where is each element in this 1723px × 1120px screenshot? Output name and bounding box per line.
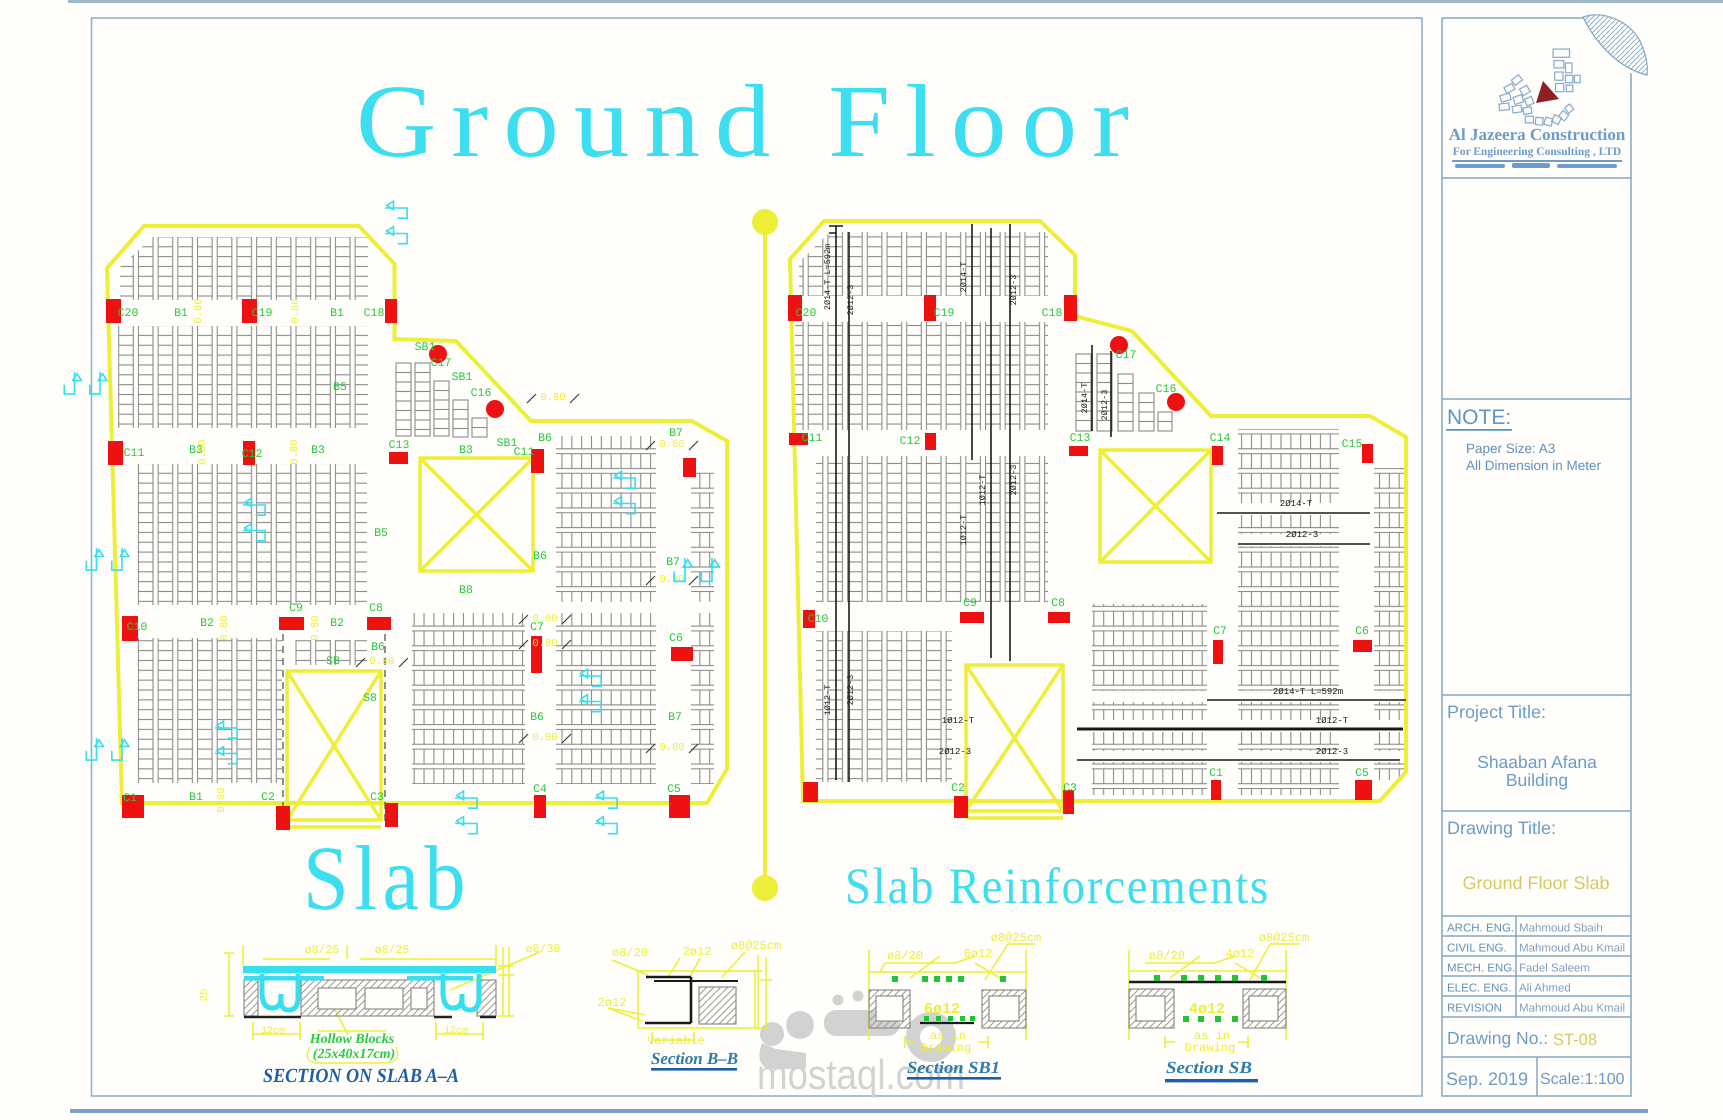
svg-text:C4: C4 <box>533 783 547 796</box>
svg-text:4ø12: 4ø12 <box>1226 947 1255 961</box>
svg-text:Project Title:: Project Title: <box>1447 702 1546 722</box>
svg-text:Drawing Title:: Drawing Title: <box>1447 818 1556 838</box>
svg-text:2Ø12-3: 2Ø12-3 <box>1009 465 1019 496</box>
svg-text:Paper Size: A3: Paper Size: A3 <box>1466 441 1555 456</box>
svg-text:2ø12: 2ø12 <box>683 945 712 959</box>
svg-text:C7: C7 <box>1213 625 1227 638</box>
svg-text:2Ø12-3: 2Ø12-3 <box>1100 390 1110 421</box>
svg-text:2Ø14-T: 2Ø14-T <box>959 262 969 293</box>
svg-text:2Ø12-3: 2Ø12-3 <box>846 675 856 706</box>
svg-text:Hollow Blocks: Hollow Blocks <box>309 1032 395 1047</box>
svg-text:4ø12: 4ø12 <box>1189 1001 1225 1018</box>
svg-text:C11: C11 <box>802 432 823 445</box>
svg-text:1Ø12-T: 1Ø12-T <box>1316 716 1349 726</box>
svg-text:C1: C1 <box>123 792 137 805</box>
svg-text:C9: C9 <box>963 597 977 610</box>
svg-text:Building: Building <box>1506 770 1568 790</box>
svg-text:C12: C12 <box>242 448 263 461</box>
svg-text:2Ø12-3: 2Ø12-3 <box>1286 530 1318 540</box>
svg-text:6ø12: 6ø12 <box>964 947 993 961</box>
svg-text:0.80: 0.80 <box>532 613 557 625</box>
svg-text:C15: C15 <box>1342 438 1363 451</box>
svg-text:C18: C18 <box>364 307 385 320</box>
svg-text:S8: S8 <box>363 692 377 705</box>
svg-text:ø8/20: ø8/20 <box>887 949 923 963</box>
svg-text:C13: C13 <box>389 439 410 452</box>
svg-text:C8: C8 <box>369 602 383 615</box>
svg-text:Drawing: Drawing <box>921 1041 971 1055</box>
svg-text:C13: C13 <box>1070 432 1091 445</box>
svg-text:ø8/25: ø8/25 <box>375 944 410 957</box>
svg-text:C5: C5 <box>667 783 681 796</box>
svg-text:ø8@25cm: ø8@25cm <box>1259 931 1309 945</box>
svg-text:C17: C17 <box>431 357 452 370</box>
svg-text:C12: C12 <box>900 435 921 448</box>
svg-text:0.80: 0.80 <box>540 392 565 404</box>
svg-text:ELEC. ENG.: ELEC. ENG. <box>1447 983 1512 995</box>
svg-text:B1: B1 <box>174 307 188 320</box>
svg-text:B5: B5 <box>374 527 388 540</box>
svg-text:B7: B7 <box>668 711 682 724</box>
svg-text:ø8/20: ø8/20 <box>1149 949 1185 963</box>
svg-text:B2: B2 <box>330 617 344 630</box>
svg-text:C20: C20 <box>118 307 139 320</box>
svg-text:C3: C3 <box>1063 782 1077 795</box>
svg-text:2Ø14-T: 2Ø14-T <box>1280 499 1313 509</box>
svg-text:2Ø14-T: 2Ø14-T <box>1080 383 1090 414</box>
svg-text:SECTION ON SLAB A–A: SECTION ON SLAB A–A <box>263 1065 459 1087</box>
svg-text:C10: C10 <box>127 621 148 634</box>
svg-text:0.80: 0.80 <box>659 574 684 586</box>
svg-text:C16: C16 <box>1156 383 1177 396</box>
svg-text:B6: B6 <box>371 641 385 654</box>
svg-text:ARCH. ENG.: ARCH. ENG. <box>1447 923 1514 935</box>
svg-text:0.80: 0.80 <box>310 615 322 640</box>
svg-text:B2: B2 <box>200 617 214 630</box>
svg-text:C19: C19 <box>252 307 273 320</box>
svg-text:All Dimension in Meter: All Dimension in Meter <box>1466 458 1602 473</box>
svg-text:Scale:1:100: Scale:1:100 <box>1540 1071 1625 1088</box>
svg-text:Sep. 2019: Sep. 2019 <box>1446 1069 1528 1089</box>
svg-text:12cm: 12cm <box>261 1026 285 1037</box>
svg-text:Ground Floor: Ground Floor <box>356 64 1144 179</box>
svg-text:SB: SB <box>326 655 340 668</box>
svg-text:2Ø12-3: 2Ø12-3 <box>846 285 856 316</box>
svg-text:0.80: 0.80 <box>216 787 228 812</box>
svg-text:B6: B6 <box>530 711 544 724</box>
svg-text:C10: C10 <box>808 613 829 626</box>
svg-text:B3: B3 <box>311 444 325 457</box>
svg-text:B7: B7 <box>666 556 680 569</box>
svg-text:12cm: 12cm <box>444 1026 468 1037</box>
svg-text:C6: C6 <box>1355 625 1369 638</box>
svg-text:0.80: 0.80 <box>369 656 394 668</box>
svg-text:Al Jazeera Construction: Al Jazeera Construction <box>1449 125 1626 144</box>
svg-text:CIVIL ENG.: CIVIL ENG. <box>1447 943 1507 955</box>
svg-text:1Ø12-T: 1Ø12-T <box>823 685 833 716</box>
svg-text:(25x40x17cm): (25x40x17cm) <box>313 1047 395 1062</box>
svg-text:C14: C14 <box>1210 432 1231 445</box>
svg-text:ø8/20: ø8/20 <box>612 946 648 960</box>
svg-text:Ground Floor Slab: Ground Floor Slab <box>1462 873 1609 893</box>
svg-text:0.80: 0.80 <box>659 439 684 451</box>
svg-text:C2: C2 <box>261 791 275 804</box>
svg-text:0.80: 0.80 <box>219 615 231 640</box>
svg-text:C2: C2 <box>951 782 965 795</box>
svg-text:Section SB: Section SB <box>1166 1058 1252 1077</box>
svg-text:0.80: 0.80 <box>289 439 301 464</box>
svg-text:ø8/30: ø8/30 <box>526 943 561 956</box>
svg-text:B1: B1 <box>330 307 344 320</box>
svg-text:B6: B6 <box>538 432 552 445</box>
svg-text:B5: B5 <box>333 381 347 394</box>
svg-text:6ø12: 6ø12 <box>924 1001 960 1018</box>
svg-text:REVISION: REVISION <box>1447 1003 1502 1015</box>
svg-text:B8: B8 <box>459 584 473 597</box>
svg-text:C5: C5 <box>1355 767 1369 780</box>
svg-text:2Ø14-T L=592m: 2Ø14-T L=592m <box>823 244 833 310</box>
svg-text:0.80: 0.80 <box>532 638 557 650</box>
svg-text:2Ø14-T L=592m: 2Ø14-T L=592m <box>1273 687 1343 697</box>
svg-text:1Ø12-T: 1Ø12-T <box>959 515 969 546</box>
svg-text:0.80: 0.80 <box>193 298 205 323</box>
svg-text:1Ø12-T: 1Ø12-T <box>978 475 988 506</box>
svg-text:Shaaban Afana: Shaaban Afana <box>1477 752 1597 772</box>
svg-text:ST-08: ST-08 <box>1553 1031 1597 1049</box>
svg-text:25: 25 <box>199 988 211 1001</box>
svg-text:C17: C17 <box>1116 349 1137 362</box>
svg-text:2Ø12-3: 2Ø12-3 <box>1009 275 1019 306</box>
svg-text:C11: C11 <box>514 446 535 459</box>
svg-text:Drawing: Drawing <box>1185 1041 1235 1055</box>
svg-text:C20: C20 <box>796 307 817 320</box>
svg-text:C3: C3 <box>370 791 384 804</box>
svg-text:SB1: SB1 <box>415 341 436 354</box>
svg-text:Slab: Slab <box>303 827 471 929</box>
svg-text:B3: B3 <box>459 444 473 457</box>
svg-text:C6: C6 <box>669 632 683 645</box>
svg-text:2Ø12-3: 2Ø12-3 <box>1316 747 1348 757</box>
svg-text:2ø12: 2ø12 <box>598 996 627 1010</box>
svg-text:0.80: 0.80 <box>659 742 684 754</box>
svg-text:SB1: SB1 <box>452 371 473 384</box>
svg-text:ø8@25cm: ø8@25cm <box>731 939 781 953</box>
svg-text:Slab Reinforcements: Slab Reinforcements <box>845 859 1270 915</box>
svg-text:0.80: 0.80 <box>290 298 302 323</box>
svg-text:B1: B1 <box>189 791 203 804</box>
svg-text:C11: C11 <box>124 447 145 460</box>
svg-text:Drawing No.:: Drawing No.: <box>1447 1028 1548 1048</box>
svg-text:MECH. ENG.: MECH. ENG. <box>1447 963 1515 975</box>
svg-text:Mahmoud Abu Kmail: Mahmoud Abu Kmail <box>1519 1003 1625 1015</box>
svg-text:Variable: Variable <box>647 1034 705 1048</box>
svg-text:C19: C19 <box>934 307 955 320</box>
svg-text:1Ø12-T: 1Ø12-T <box>942 716 975 726</box>
svg-text:2Ø12-3: 2Ø12-3 <box>939 747 971 757</box>
svg-text:NOTE:: NOTE: <box>1447 406 1511 429</box>
svg-text:C9: C9 <box>289 602 303 615</box>
svg-text:C1: C1 <box>1209 767 1223 780</box>
svg-text:C16: C16 <box>471 387 492 400</box>
svg-text:0.80: 0.80 <box>197 439 209 464</box>
svg-text:Ali Ahmed: Ali Ahmed <box>1519 983 1571 995</box>
svg-text:Mahmoud Abu Kmail: Mahmoud Abu Kmail <box>1519 943 1625 955</box>
svg-text:For Engineering Consulting , L: For Engineering Consulting , LTD <box>1453 146 1621 158</box>
svg-text:ø8@25cm: ø8@25cm <box>991 931 1041 945</box>
svg-text:Section B–B: Section B–B <box>651 1049 738 1068</box>
svg-text:B6: B6 <box>533 550 547 563</box>
svg-text:0.80: 0.80 <box>532 732 557 744</box>
svg-text:ø8/25: ø8/25 <box>305 944 340 957</box>
svg-text:C18: C18 <box>1042 307 1063 320</box>
svg-text:Section SB1: Section SB1 <box>907 1058 1000 1077</box>
svg-text:Mahmoud Sbaih: Mahmoud Sbaih <box>1519 923 1603 935</box>
svg-text:C8: C8 <box>1051 597 1065 610</box>
svg-text:Fadel Saleem: Fadel Saleem <box>1519 963 1590 975</box>
